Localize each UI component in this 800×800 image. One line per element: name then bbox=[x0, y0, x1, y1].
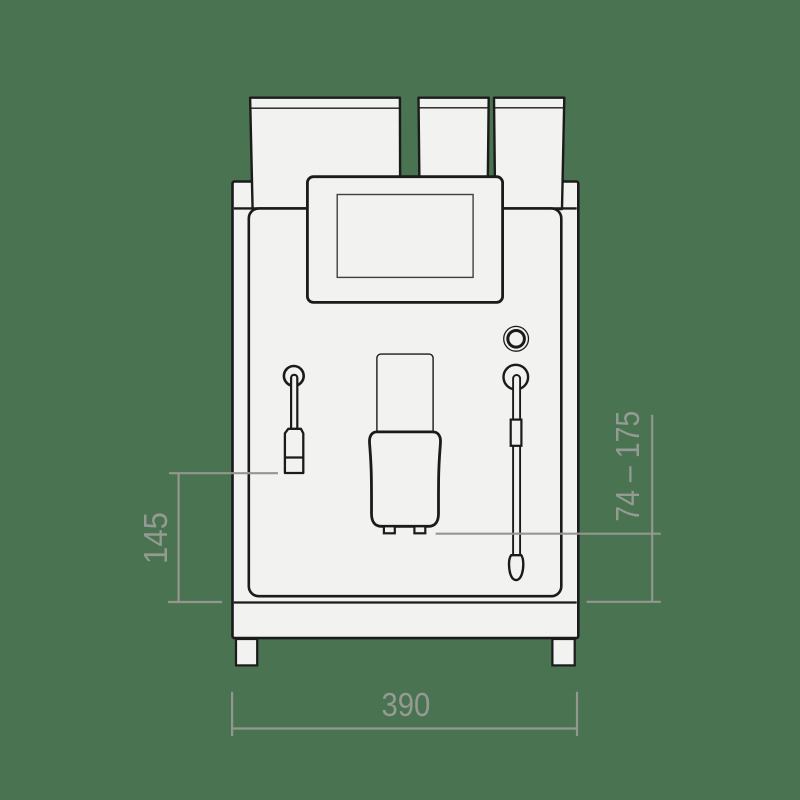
svg-text:390: 390 bbox=[382, 686, 431, 723]
svg-text:74 – 175: 74 – 175 bbox=[609, 411, 646, 522]
svg-text:145: 145 bbox=[137, 512, 174, 564]
